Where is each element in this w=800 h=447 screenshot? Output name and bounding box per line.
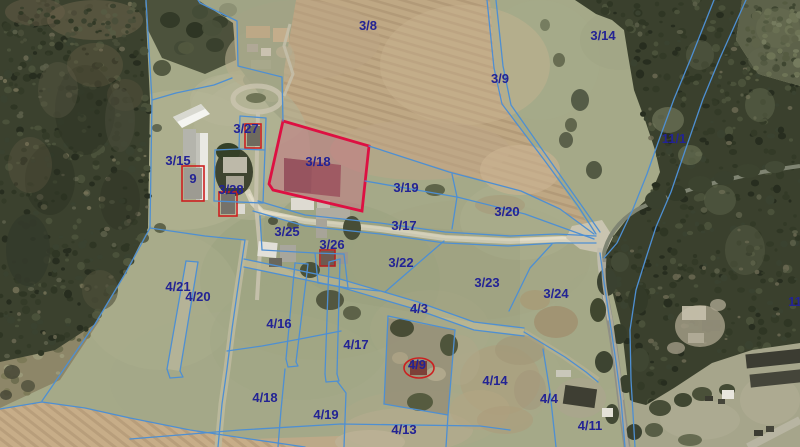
- svg-text:3/25: 3/25: [274, 224, 299, 239]
- svg-text:3/26: 3/26: [319, 237, 344, 252]
- svg-text:4/13: 4/13: [391, 422, 416, 437]
- svg-text:3/8: 3/8: [359, 18, 377, 33]
- svg-text:3/19: 3/19: [393, 180, 418, 195]
- svg-text:3/28: 3/28: [218, 182, 243, 197]
- svg-text:4/14: 4/14: [482, 373, 508, 388]
- svg-text:4/17: 4/17: [343, 337, 368, 352]
- svg-text:3/17: 3/17: [391, 218, 416, 233]
- svg-text:11: 11: [788, 294, 800, 309]
- svg-text:3/27: 3/27: [233, 121, 258, 136]
- svg-text:3/9: 3/9: [491, 71, 509, 86]
- svg-text:4/9: 4/9: [408, 357, 426, 372]
- svg-text:4/3: 4/3: [410, 301, 428, 316]
- svg-text:4/4: 4/4: [540, 391, 559, 406]
- svg-text:4/20: 4/20: [185, 289, 210, 304]
- svg-text:4/16: 4/16: [266, 316, 291, 331]
- svg-text:3/23: 3/23: [474, 275, 499, 290]
- svg-text:4/19: 4/19: [313, 407, 338, 422]
- svg-text:3/14: 3/14: [590, 28, 616, 43]
- svg-text:9: 9: [189, 171, 196, 186]
- svg-text:4/11: 4/11: [578, 418, 603, 433]
- svg-text:3/24: 3/24: [543, 286, 569, 301]
- svg-text:3/22: 3/22: [388, 255, 413, 270]
- svg-text:11/1: 11/1: [662, 131, 687, 146]
- svg-text:3/15: 3/15: [165, 153, 190, 168]
- svg-text:4/18: 4/18: [252, 390, 277, 405]
- svg-text:3/18: 3/18: [305, 154, 330, 169]
- svg-text:3/20: 3/20: [494, 204, 519, 219]
